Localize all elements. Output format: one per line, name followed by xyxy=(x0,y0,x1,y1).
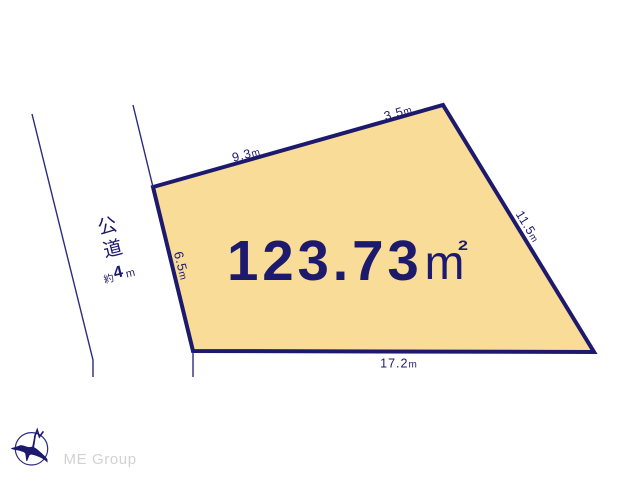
svg-text:17.2m: 17.2m xyxy=(380,357,418,371)
svg-text:ME Group: ME Group xyxy=(64,451,137,468)
svg-text:2: 2 xyxy=(458,237,468,253)
svg-text:123.73: 123.73 xyxy=(227,229,423,292)
